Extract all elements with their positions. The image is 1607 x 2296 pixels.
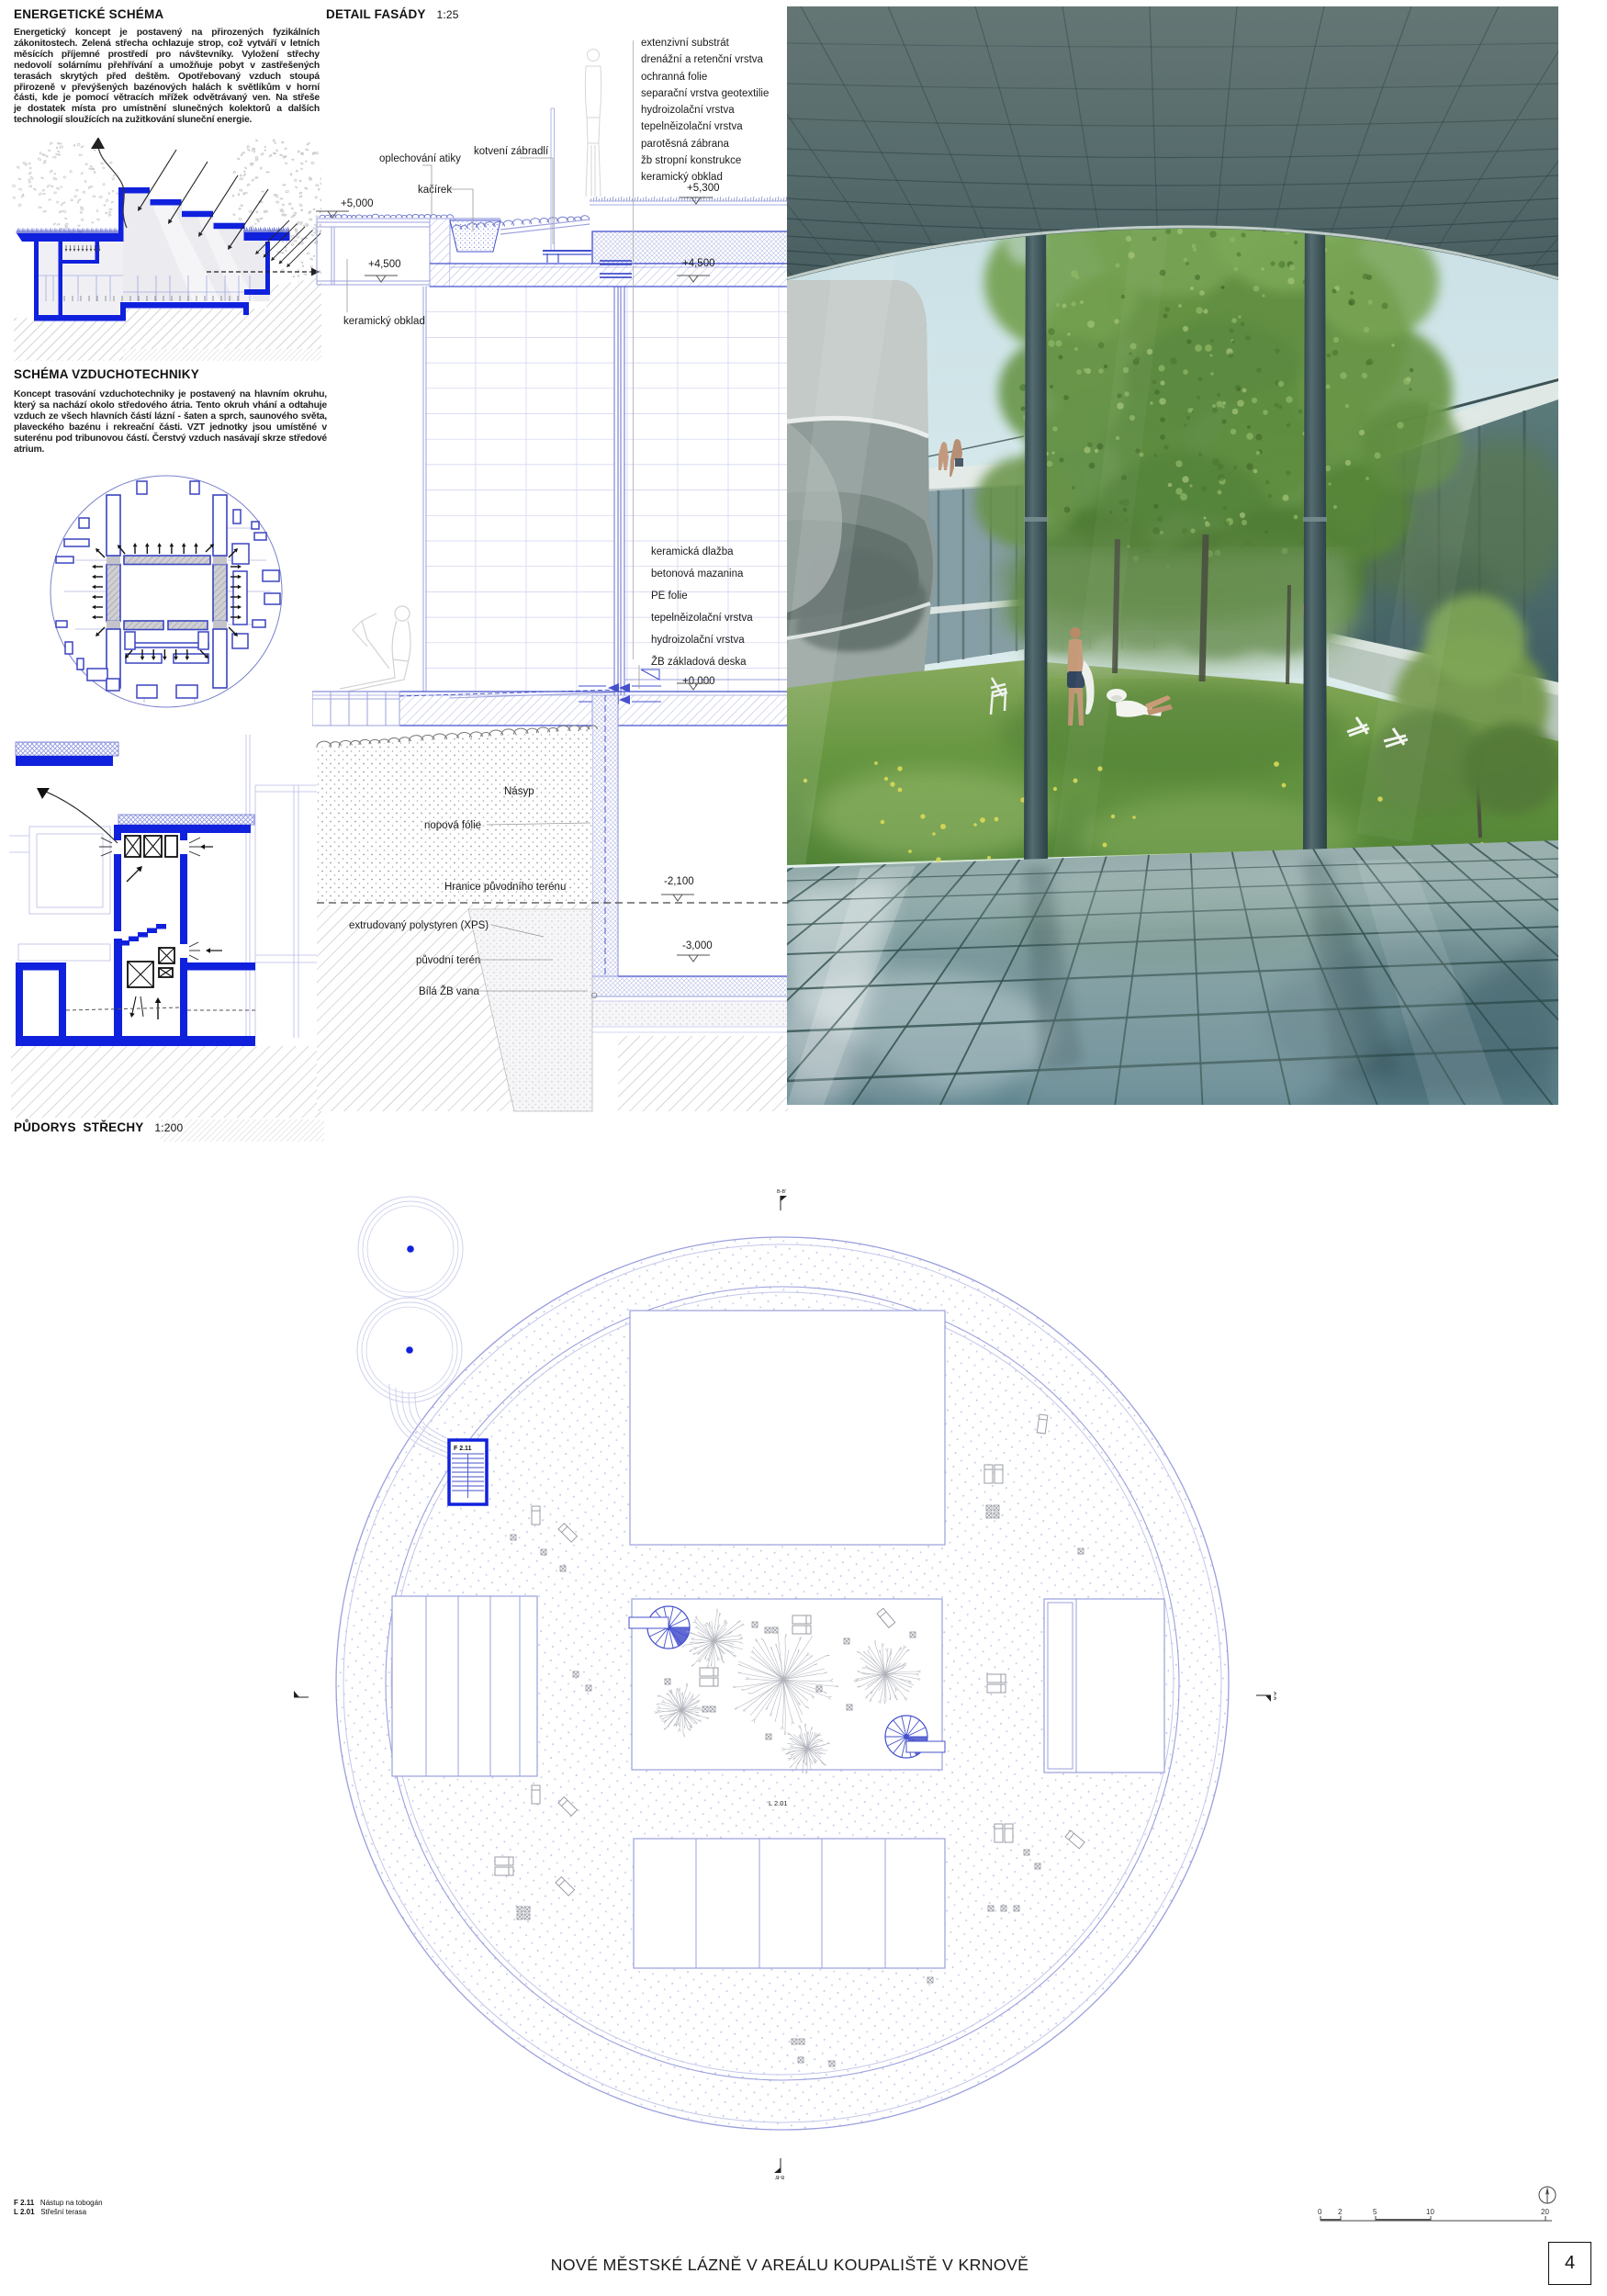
svg-text:kačírek: kačírek xyxy=(418,185,452,196)
svg-text:-3,000: -3,000 xyxy=(682,940,713,951)
svg-text:keramická dlažba: keramická dlažba xyxy=(651,546,734,557)
svg-text:keramický obklad: keramický obklad xyxy=(343,316,425,327)
svg-text:2: 2 xyxy=(1338,2208,1343,2216)
svg-text:extenzivní substrát: extenzivní substrát xyxy=(641,38,730,49)
svg-text:oplechování atiky: oplechování atiky xyxy=(379,153,461,164)
svg-text:A-A': A-A' xyxy=(1272,1692,1276,1701)
svg-text:+0,000: +0,000 xyxy=(682,676,715,687)
svg-text:nopová fólie: nopová fólie xyxy=(424,820,481,831)
svg-text:20: 20 xyxy=(1541,2208,1549,2216)
svg-text:ochranná folie: ochranná folie xyxy=(641,72,707,83)
svg-text:B-B': B-B' xyxy=(775,2174,784,2179)
svg-text:žb stropní konstrukce: žb stropní konstrukce xyxy=(641,155,741,166)
svg-text:+4,500: +4,500 xyxy=(368,259,401,270)
svg-text:extrudovaný polystyren (XPS): extrudovaný polystyren (XPS) xyxy=(349,920,489,931)
svg-text:původní terén: původní terén xyxy=(416,955,480,966)
svg-text:F 2.11: F 2.11 xyxy=(454,1446,472,1452)
svg-text:+5,000: +5,000 xyxy=(341,198,374,209)
svg-text:PE folie: PE folie xyxy=(651,591,688,602)
svg-text:0: 0 xyxy=(1318,2208,1322,2216)
svg-text:tepelněizolační vrstva: tepelněizolační vrstva xyxy=(651,613,753,624)
svg-text:+4,500: +4,500 xyxy=(682,258,715,269)
svg-text:parotěsná zábrana: parotěsná zábrana xyxy=(641,139,730,150)
svg-text:ŽB základová deska: ŽB základová deska xyxy=(651,656,747,668)
svg-text:-2,100: -2,100 xyxy=(664,876,694,887)
svg-text:Bílá ŽB vana: Bílá ŽB vana xyxy=(419,985,479,997)
svg-text:hydroizolační vrstva: hydroizolační vrstva xyxy=(641,105,735,116)
svg-text:tepelněizolační vrstva: tepelněizolační vrstva xyxy=(641,121,743,132)
svg-text:betonová mazanina: betonová mazanina xyxy=(651,568,744,580)
svg-text:hydroizolační vrstva: hydroizolační vrstva xyxy=(651,635,745,646)
svg-text:+5,300: +5,300 xyxy=(687,183,720,194)
svg-text:Hranice původního terénu: Hranice původního terénu xyxy=(444,882,566,893)
svg-text:B-B': B-B' xyxy=(777,1189,786,1195)
svg-text:kotvení zábradlí: kotvení zábradlí xyxy=(474,146,549,157)
svg-text:Násyp: Násyp xyxy=(504,786,534,797)
svg-text:drenážní a retenční vrstva: drenážní a retenční vrstva xyxy=(641,54,764,65)
svg-text:10: 10 xyxy=(1426,2208,1434,2216)
svg-text:separační vrstva geotextilie: separační vrstva geotextilie xyxy=(641,88,769,99)
svg-text:keramický obklad: keramický obklad xyxy=(641,172,723,183)
svg-text:5: 5 xyxy=(1373,2208,1377,2216)
svg-text:L 2.01: L 2.01 xyxy=(769,1799,788,1807)
